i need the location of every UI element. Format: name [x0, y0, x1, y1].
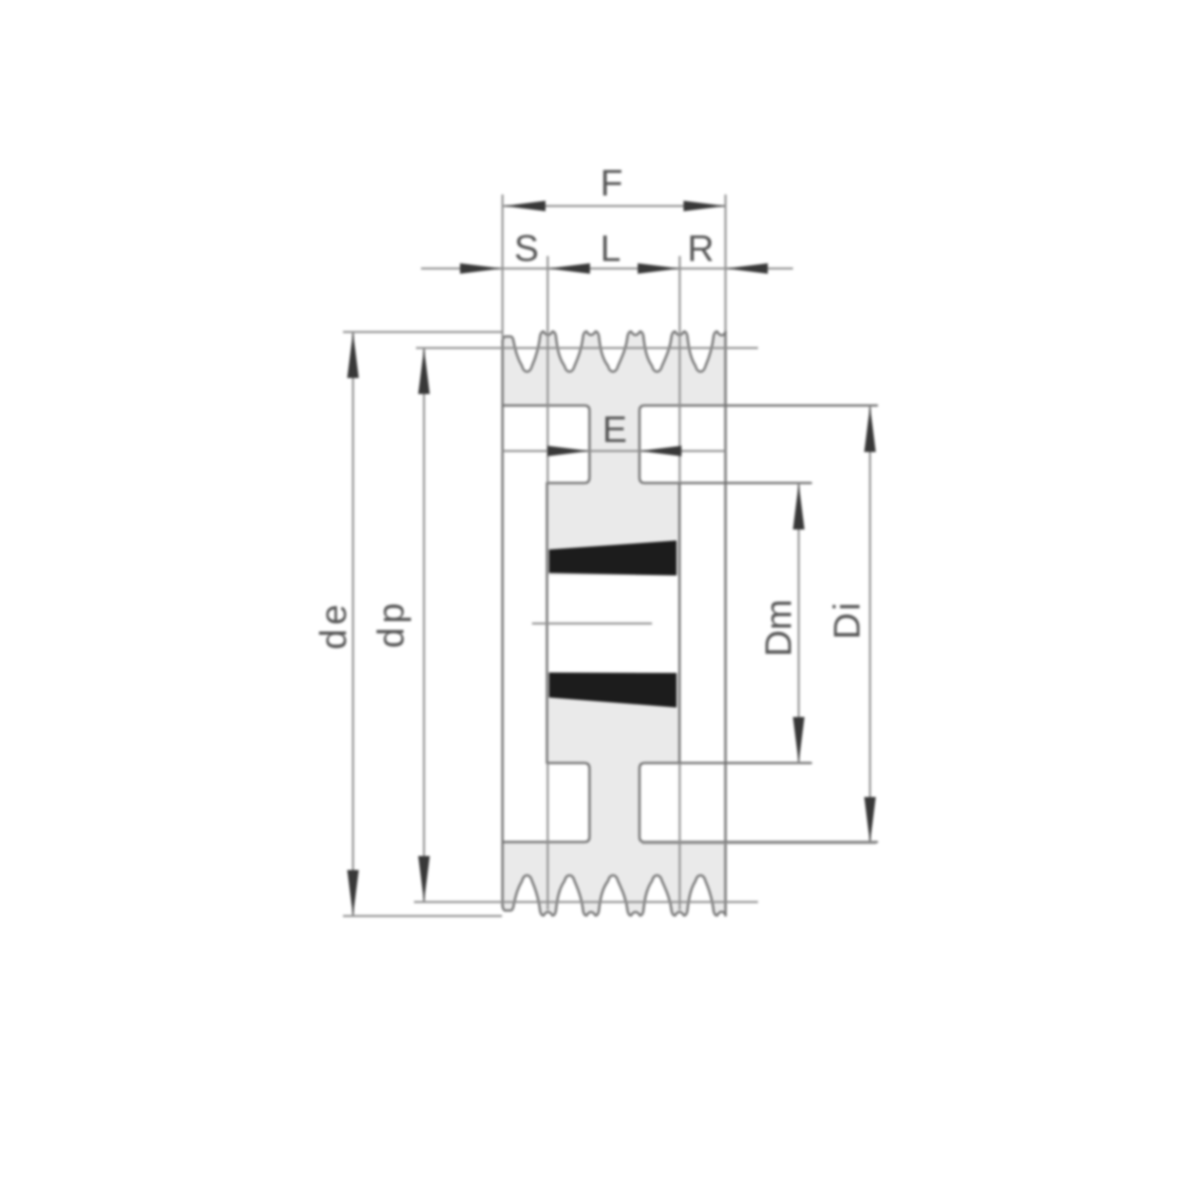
svg-text:de: de: [313, 600, 354, 649]
svg-text:F: F: [600, 163, 623, 204]
svg-text:Dm: Dm: [758, 599, 799, 657]
svg-text:R: R: [687, 228, 714, 269]
svg-text:S: S: [514, 228, 539, 269]
svg-text:dp: dp: [371, 599, 412, 648]
svg-text:E: E: [602, 409, 627, 450]
svg-text:Di: Di: [827, 601, 868, 640]
svg-text:L: L: [600, 228, 621, 269]
